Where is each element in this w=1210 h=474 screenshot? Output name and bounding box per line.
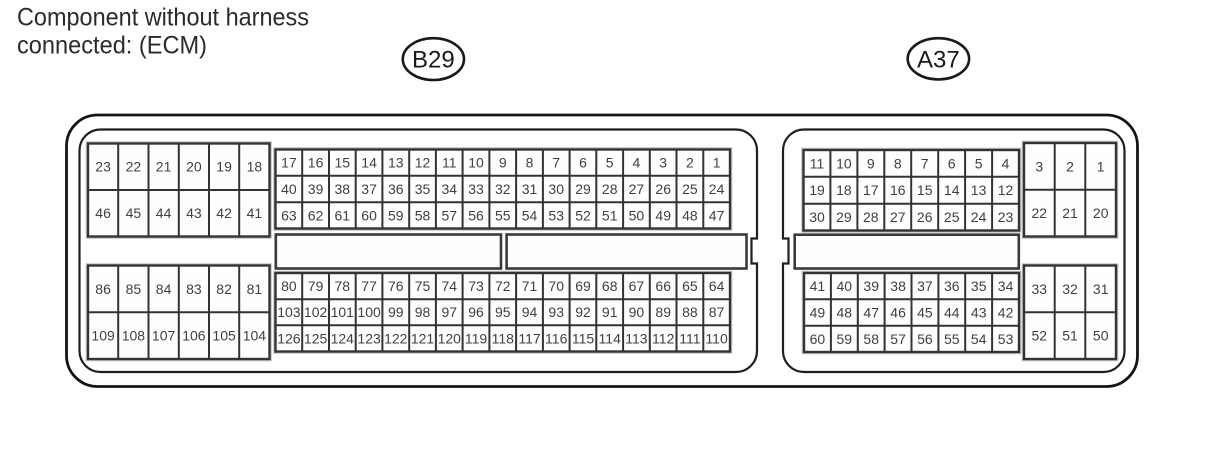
svg-text:6: 6 <box>579 155 587 171</box>
svg-text:30: 30 <box>809 209 825 225</box>
svg-text:92: 92 <box>575 304 591 320</box>
svg-text:38: 38 <box>335 181 351 197</box>
svg-text:109: 109 <box>91 328 115 344</box>
svg-text:2: 2 <box>686 155 694 171</box>
svg-text:7: 7 <box>552 155 560 171</box>
svg-text:17: 17 <box>281 155 297 171</box>
svg-text:74: 74 <box>442 278 458 294</box>
svg-text:3: 3 <box>659 155 667 171</box>
svg-text:33: 33 <box>468 181 484 197</box>
svg-text:53: 53 <box>998 331 1014 347</box>
svg-text:26: 26 <box>917 209 933 225</box>
svg-text:59: 59 <box>837 331 853 347</box>
svg-text:24: 24 <box>971 209 987 225</box>
svg-text:16: 16 <box>308 155 324 171</box>
svg-text:48: 48 <box>837 305 853 321</box>
svg-text:75: 75 <box>415 278 431 294</box>
svg-text:8: 8 <box>526 155 534 171</box>
svg-text:63: 63 <box>281 207 297 223</box>
svg-text:114: 114 <box>599 330 622 346</box>
svg-text:31: 31 <box>522 181 538 197</box>
svg-text:27: 27 <box>629 181 645 197</box>
svg-text:18: 18 <box>836 182 852 198</box>
svg-text:52: 52 <box>575 207 591 223</box>
svg-text:102: 102 <box>304 304 328 320</box>
svg-text:25: 25 <box>682 181 698 197</box>
svg-text:66: 66 <box>655 278 671 294</box>
svg-text:115: 115 <box>572 330 595 346</box>
svg-text:34: 34 <box>442 181 458 197</box>
svg-text:83: 83 <box>186 281 202 297</box>
svg-text:21: 21 <box>1062 205 1078 221</box>
svg-text:125: 125 <box>304 330 328 346</box>
svg-text:20: 20 <box>186 159 202 175</box>
svg-text:57: 57 <box>890 331 906 347</box>
svg-text:42: 42 <box>216 205 232 221</box>
svg-text:27: 27 <box>890 209 906 225</box>
svg-text:50: 50 <box>1093 328 1109 344</box>
svg-text:43: 43 <box>971 305 987 321</box>
svg-text:37: 37 <box>917 278 933 294</box>
svg-text:Component without harness: Component without harness <box>17 4 309 32</box>
svg-text:52: 52 <box>1032 328 1048 344</box>
svg-text:67: 67 <box>629 278 645 294</box>
svg-text:29: 29 <box>575 181 591 197</box>
svg-text:77: 77 <box>361 278 377 294</box>
svg-text:9: 9 <box>867 155 875 171</box>
svg-text:39: 39 <box>308 181 324 197</box>
svg-text:46: 46 <box>890 305 906 321</box>
svg-text:43: 43 <box>186 205 202 221</box>
svg-text:91: 91 <box>602 304 618 320</box>
svg-text:7: 7 <box>921 155 929 171</box>
svg-text:15: 15 <box>335 155 351 171</box>
svg-text:39: 39 <box>863 278 879 294</box>
svg-text:101: 101 <box>331 304 355 320</box>
svg-text:53: 53 <box>548 207 564 223</box>
svg-text:42: 42 <box>998 305 1014 321</box>
svg-text:44: 44 <box>944 305 960 321</box>
svg-text:32: 32 <box>1062 281 1078 297</box>
svg-text:40: 40 <box>837 278 853 294</box>
svg-text:56: 56 <box>468 207 484 223</box>
svg-text:15: 15 <box>917 182 933 198</box>
svg-text:78: 78 <box>335 278 351 294</box>
svg-text:104: 104 <box>243 328 267 344</box>
svg-text:4: 4 <box>633 155 641 171</box>
svg-text:21: 21 <box>156 159 172 175</box>
svg-text:68: 68 <box>602 278 618 294</box>
svg-text:6: 6 <box>948 155 956 171</box>
svg-text:25: 25 <box>944 209 960 225</box>
svg-text:49: 49 <box>655 207 671 223</box>
svg-text:116: 116 <box>545 330 568 346</box>
svg-text:60: 60 <box>810 331 826 347</box>
svg-text:57: 57 <box>442 207 458 223</box>
svg-text:87: 87 <box>709 304 725 320</box>
svg-text:32: 32 <box>495 181 511 197</box>
svg-text:28: 28 <box>863 209 879 225</box>
svg-text:124: 124 <box>331 330 355 346</box>
svg-text:105: 105 <box>212 328 236 344</box>
svg-text:113: 113 <box>625 330 648 346</box>
svg-text:connected: (ECM): connected: (ECM) <box>17 32 207 60</box>
svg-text:44: 44 <box>156 205 172 221</box>
svg-text:12: 12 <box>998 182 1014 198</box>
svg-text:112: 112 <box>652 330 675 346</box>
svg-text:11: 11 <box>442 155 457 171</box>
svg-text:1: 1 <box>713 155 721 171</box>
svg-text:110: 110 <box>705 330 728 346</box>
svg-text:11: 11 <box>810 155 825 171</box>
svg-text:69: 69 <box>575 278 591 294</box>
svg-text:58: 58 <box>863 331 879 347</box>
svg-text:30: 30 <box>548 181 564 197</box>
svg-text:5: 5 <box>606 155 614 171</box>
svg-text:103: 103 <box>277 304 301 320</box>
svg-text:22: 22 <box>1032 205 1048 221</box>
svg-text:20: 20 <box>1093 205 1109 221</box>
svg-text:59: 59 <box>388 207 404 223</box>
svg-text:10: 10 <box>468 155 484 171</box>
svg-text:23: 23 <box>95 159 111 175</box>
svg-text:A37: A37 <box>917 46 960 73</box>
svg-text:24: 24 <box>709 181 725 197</box>
svg-text:95: 95 <box>495 304 511 320</box>
svg-text:14: 14 <box>361 155 377 171</box>
svg-text:3: 3 <box>1035 158 1043 174</box>
svg-text:14: 14 <box>944 182 960 198</box>
svg-text:93: 93 <box>548 304 564 320</box>
svg-text:79: 79 <box>308 278 324 294</box>
svg-text:55: 55 <box>944 331 960 347</box>
svg-text:60: 60 <box>361 207 377 223</box>
svg-text:48: 48 <box>682 207 698 223</box>
svg-text:73: 73 <box>468 278 484 294</box>
svg-text:41: 41 <box>810 278 826 294</box>
svg-text:106: 106 <box>182 328 206 344</box>
svg-text:86: 86 <box>95 281 111 297</box>
svg-text:80: 80 <box>281 278 297 294</box>
svg-text:10: 10 <box>836 155 852 171</box>
svg-text:36: 36 <box>944 278 960 294</box>
svg-text:117: 117 <box>518 330 541 346</box>
svg-text:38: 38 <box>890 278 906 294</box>
svg-text:13: 13 <box>388 155 404 171</box>
svg-text:54: 54 <box>971 331 987 347</box>
svg-text:1: 1 <box>1097 158 1105 174</box>
svg-text:49: 49 <box>810 305 826 321</box>
svg-text:99: 99 <box>388 304 404 320</box>
svg-text:40: 40 <box>281 181 297 197</box>
svg-text:9: 9 <box>499 155 507 171</box>
svg-text:23: 23 <box>998 209 1014 225</box>
svg-text:56: 56 <box>917 331 933 347</box>
svg-text:16: 16 <box>890 182 906 198</box>
svg-text:B29: B29 <box>412 47 455 74</box>
svg-text:47: 47 <box>863 305 879 321</box>
svg-text:89: 89 <box>655 304 671 320</box>
svg-text:37: 37 <box>361 181 377 197</box>
svg-text:62: 62 <box>308 207 324 223</box>
svg-text:50: 50 <box>629 207 645 223</box>
svg-text:2: 2 <box>1066 158 1074 174</box>
svg-text:12: 12 <box>415 155 431 171</box>
svg-text:45: 45 <box>917 305 933 321</box>
svg-text:84: 84 <box>156 281 172 297</box>
svg-text:64: 64 <box>709 278 725 294</box>
svg-text:97: 97 <box>442 304 458 320</box>
svg-text:19: 19 <box>809 182 825 198</box>
svg-text:123: 123 <box>357 330 381 346</box>
svg-text:51: 51 <box>1062 328 1078 344</box>
svg-text:100: 100 <box>357 304 381 320</box>
svg-text:46: 46 <box>95 205 111 221</box>
svg-text:35: 35 <box>971 278 987 294</box>
svg-text:119: 119 <box>465 330 488 346</box>
svg-text:111: 111 <box>679 330 700 346</box>
svg-text:13: 13 <box>971 182 987 198</box>
svg-text:45: 45 <box>126 205 142 221</box>
svg-text:88: 88 <box>682 304 698 320</box>
svg-text:41: 41 <box>247 205 263 221</box>
svg-text:126: 126 <box>277 330 301 346</box>
svg-text:4: 4 <box>1002 155 1010 171</box>
svg-text:47: 47 <box>709 207 725 223</box>
svg-text:85: 85 <box>126 281 142 297</box>
svg-text:121: 121 <box>411 330 435 346</box>
svg-text:5: 5 <box>975 155 983 171</box>
svg-text:28: 28 <box>602 181 618 197</box>
svg-text:70: 70 <box>548 278 564 294</box>
svg-text:71: 71 <box>522 278 538 294</box>
svg-text:26: 26 <box>655 181 671 197</box>
svg-text:65: 65 <box>682 278 698 294</box>
svg-text:61: 61 <box>335 207 351 223</box>
svg-text:35: 35 <box>415 181 431 197</box>
svg-text:29: 29 <box>836 209 852 225</box>
svg-text:82: 82 <box>216 281 232 297</box>
svg-text:96: 96 <box>468 304 484 320</box>
svg-text:31: 31 <box>1093 281 1109 297</box>
svg-text:122: 122 <box>384 330 408 346</box>
svg-text:72: 72 <box>495 278 511 294</box>
svg-text:120: 120 <box>438 330 462 346</box>
svg-text:54: 54 <box>522 207 538 223</box>
svg-text:55: 55 <box>495 207 511 223</box>
svg-text:108: 108 <box>122 328 146 344</box>
svg-text:76: 76 <box>388 278 404 294</box>
svg-text:34: 34 <box>998 278 1014 294</box>
svg-text:19: 19 <box>216 159 232 175</box>
svg-text:58: 58 <box>415 207 431 223</box>
svg-text:8: 8 <box>894 155 902 171</box>
svg-text:118: 118 <box>492 330 515 346</box>
svg-text:22: 22 <box>126 159 142 175</box>
svg-text:107: 107 <box>152 328 176 344</box>
svg-text:98: 98 <box>415 304 431 320</box>
svg-text:33: 33 <box>1032 281 1048 297</box>
svg-text:18: 18 <box>247 159 263 175</box>
svg-text:81: 81 <box>247 281 263 297</box>
svg-text:36: 36 <box>388 181 404 197</box>
svg-text:17: 17 <box>863 182 879 198</box>
svg-text:90: 90 <box>629 304 645 320</box>
svg-text:94: 94 <box>522 304 538 320</box>
svg-text:51: 51 <box>602 207 618 223</box>
